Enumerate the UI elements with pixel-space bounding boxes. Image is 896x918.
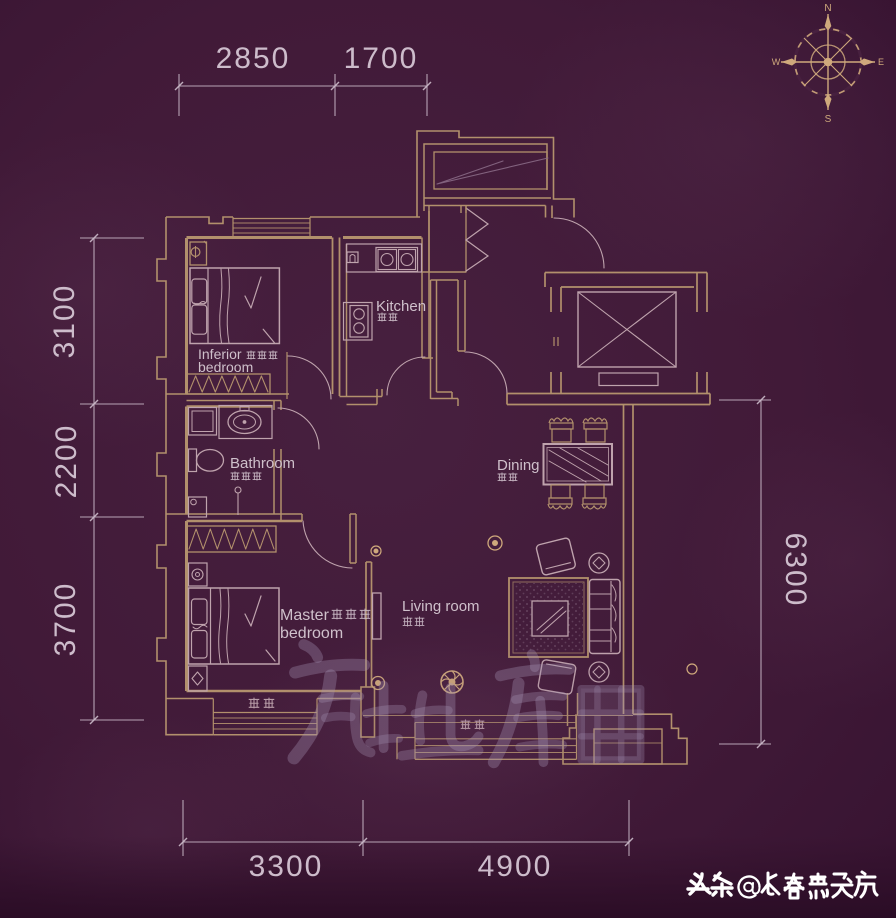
svg-text:3100: 3100 (48, 284, 81, 359)
svg-text:bedroom: bedroom (280, 625, 343, 642)
svg-text:Dining: Dining (497, 457, 540, 474)
svg-text:Kitchen: Kitchen (376, 298, 426, 315)
svg-text:1700: 1700 (344, 42, 419, 75)
svg-text:N: N (824, 3, 831, 14)
svg-text:4900: 4900 (478, 850, 553, 883)
svg-text:W: W (772, 57, 781, 67)
svg-text:Living room: Living room (402, 598, 480, 615)
svg-text:6300: 6300 (779, 533, 812, 608)
svg-text:3300: 3300 (249, 850, 324, 883)
svg-text:bedroom: bedroom (198, 359, 253, 375)
svg-text:E: E (878, 57, 884, 67)
svg-text:Bathroom: Bathroom (230, 455, 295, 472)
svg-text:3700: 3700 (49, 582, 82, 657)
svg-text:2850: 2850 (216, 42, 291, 75)
svg-text:Master: Master (280, 607, 330, 624)
svg-text:2200: 2200 (50, 424, 83, 499)
svg-text:S: S (825, 114, 832, 125)
